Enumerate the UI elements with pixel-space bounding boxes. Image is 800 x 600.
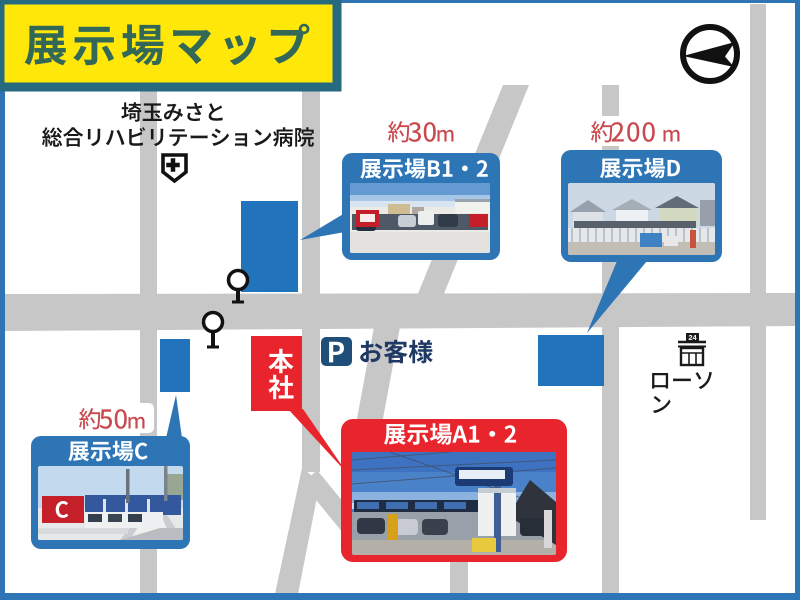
svg-text:24: 24 (688, 333, 697, 342)
